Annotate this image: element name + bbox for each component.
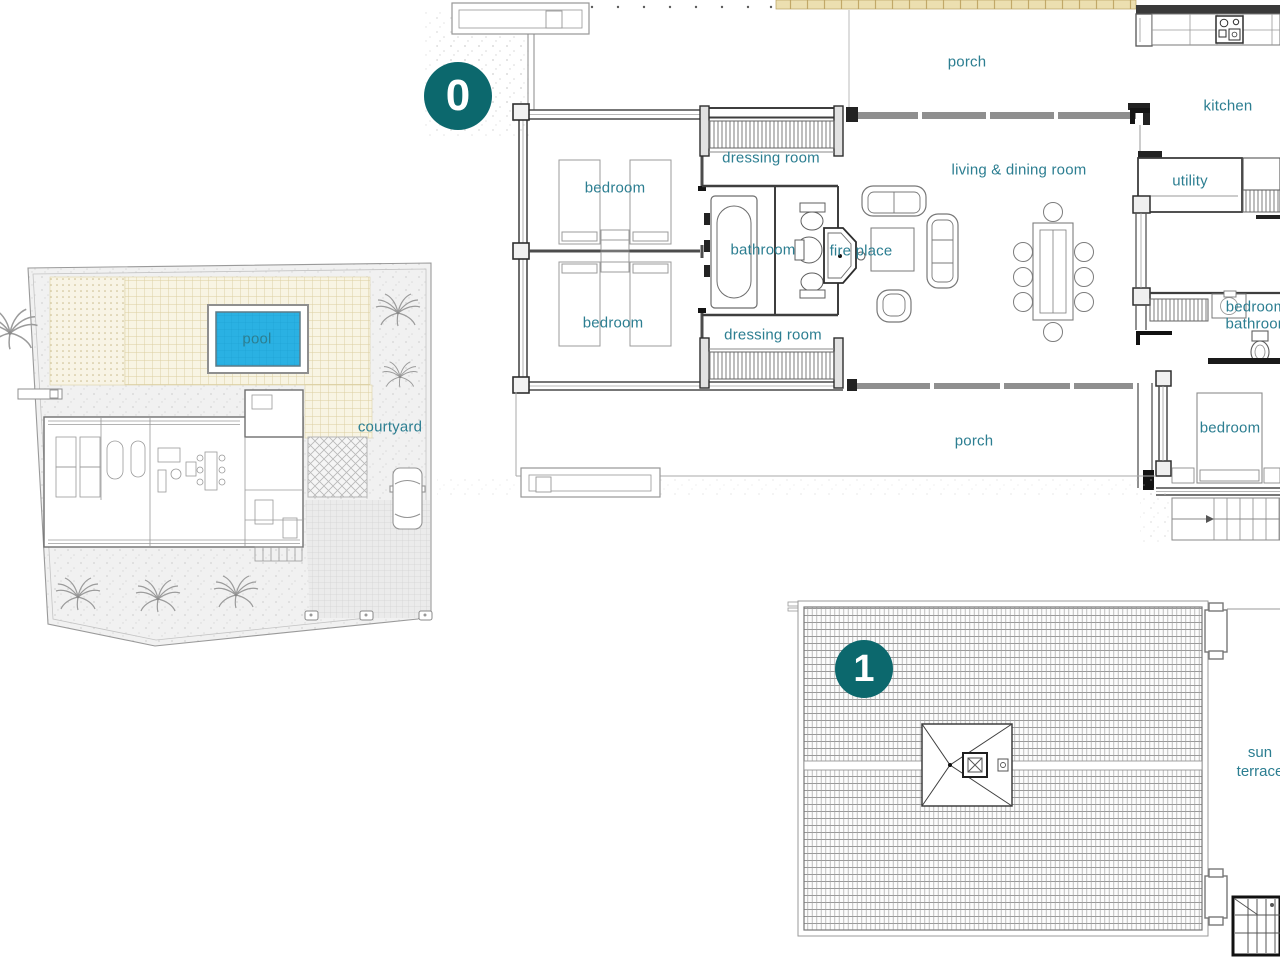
- courtyard-hatch: [308, 437, 367, 497]
- room-label-bathroom-main: bathroom: [731, 242, 796, 259]
- planter-top: [452, 3, 589, 34]
- kitchen-area: [1130, 5, 1280, 152]
- level-badge-0: 0: [424, 62, 492, 130]
- porch-step: [850, 112, 1136, 119]
- planter-bottom: [521, 468, 660, 497]
- toilet-2: [1252, 331, 1268, 341]
- dining-table: [1014, 203, 1094, 342]
- deck-dotted-area: [50, 277, 125, 385]
- level-badge-1: 1: [835, 640, 893, 698]
- room-label-pool: pool: [242, 331, 271, 348]
- chimney-bottom: [1205, 869, 1227, 925]
- terrace-stairs: [1233, 897, 1280, 955]
- room-label-porch-top: porch: [948, 54, 987, 71]
- room-label-dressing-bottom: dressing room: [724, 327, 822, 344]
- room-label-bedroom-4: bedroom: [1200, 420, 1261, 437]
- bedroom-4-area: [1138, 371, 1280, 544]
- bed-4: [1172, 393, 1280, 483]
- level-badge-1-number: 1: [853, 648, 874, 691]
- room-label-living-dining: living & dining room: [952, 162, 1087, 179]
- utility-room: [1138, 151, 1280, 219]
- chimney-top: [1205, 603, 1227, 659]
- pergola-strip: [776, 0, 1136, 9]
- floorplan-page: 0 1 pool courtyard porch kitchen dressin…: [0, 0, 1280, 960]
- entry-bench: [18, 389, 62, 399]
- room-label-kitchen: kitchen: [1204, 98, 1253, 115]
- stove: [1216, 16, 1243, 43]
- room-label-bedroom-1: bedroom: [585, 180, 646, 197]
- room-label-dressing-top: dressing room: [722, 150, 820, 167]
- wardrobe-top: [700, 106, 843, 156]
- floor0-plan: [425, 0, 1280, 544]
- dotted-line: [591, 6, 772, 8]
- site-plan: [0, 263, 432, 646]
- level-badge-0-number: 0: [446, 71, 470, 121]
- exterior-stairs: [1172, 498, 1280, 540]
- room-label-porch-bottom: porch: [955, 433, 994, 450]
- beds-bedroom-1: [559, 160, 671, 250]
- closet-hatch: [1243, 190, 1280, 212]
- corridor-wall: [1133, 196, 1172, 345]
- room-label-utility: utility: [1172, 173, 1208, 190]
- beds-bedroom-2: [559, 252, 671, 346]
- room-label-sun-terrace: sun terrace: [1224, 744, 1280, 782]
- room-label-bedroom-3: bedroom: [1226, 299, 1280, 316]
- room-label-bedroom-2: bedroom: [583, 315, 644, 332]
- room-label-bathroom-2: bathroom: [1226, 316, 1280, 333]
- floorplan-drawing: [0, 0, 1280, 960]
- wardrobe-bottom: [700, 338, 843, 388]
- skylight: [922, 724, 1012, 806]
- room-label-courtyard: courtyard: [358, 419, 422, 436]
- room-label-fire-place: fire place: [830, 243, 893, 260]
- bidet: [801, 273, 823, 291]
- car-icon: [390, 468, 425, 529]
- toilet: [800, 203, 825, 212]
